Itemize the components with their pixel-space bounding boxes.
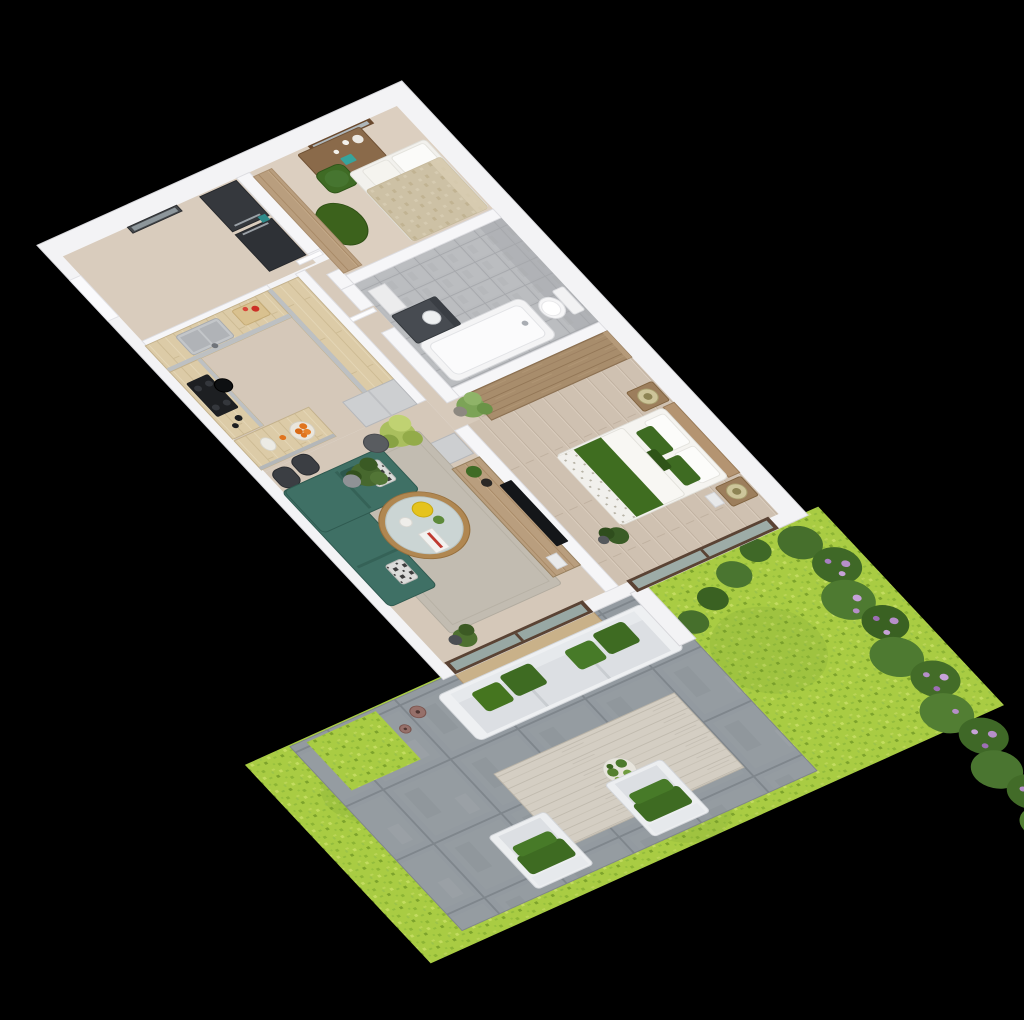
floor-plan-svg [0, 0, 1024, 1020]
floor-plan-canvas [0, 0, 1024, 1020]
floor-plan-render [0, 0, 1024, 1020]
